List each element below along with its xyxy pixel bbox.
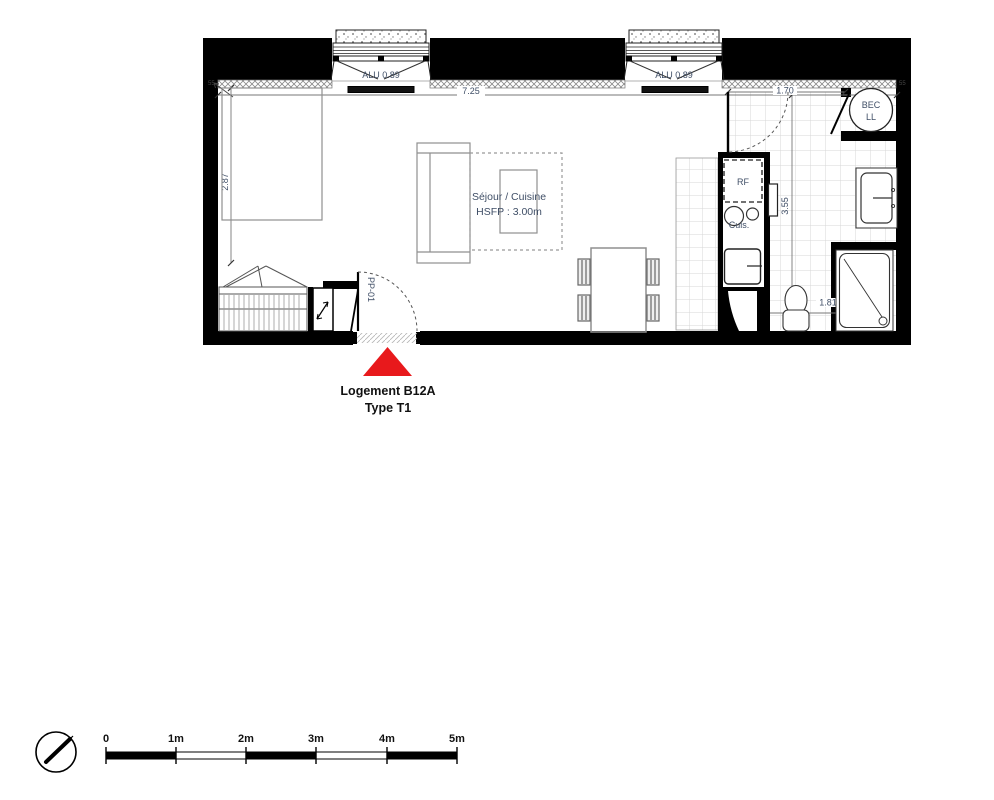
scale-1m: 1m: [168, 733, 184, 745]
toilet: [783, 286, 809, 332]
cooktop-label: Cuis.: [729, 220, 750, 230]
dim-shower-width: 1.81: [819, 298, 837, 308]
unit-type: Type T1: [365, 401, 411, 415]
heater-label-2: LL: [866, 112, 876, 122]
scale-bar: 0 1m 2m 3m 4m 5m: [103, 733, 465, 764]
dim-bath-depth: 3.55: [780, 197, 790, 215]
dim-living-width: 7.25: [462, 86, 480, 96]
insulation-right-label: 55: [899, 81, 906, 87]
wardrobe: [219, 266, 307, 331]
scale-0: 0: [103, 733, 109, 745]
insulation-left-label: 55: [208, 81, 215, 87]
room-ceiling-label: HSFP : 3.00m: [476, 206, 542, 218]
radiator-right: [642, 87, 708, 93]
window-unit-left: ALU 0.89: [331, 30, 431, 93]
scale-4m: 4m: [379, 733, 395, 745]
kitchen-floor-tiles: [676, 158, 718, 330]
floor-plan-drawing: 55 55 ALU 0.89: [0, 0, 994, 800]
north-compass: [36, 732, 76, 772]
unit-title: Logement B12A: [340, 384, 435, 398]
shower: [836, 250, 893, 331]
wardrobe-door-swing-marks: [223, 266, 307, 287]
sofa: [417, 143, 470, 263]
water-heater-washer: [850, 89, 893, 132]
dining-chairs: [578, 259, 659, 321]
scale-2m: 2m: [238, 733, 254, 745]
entrance-door: PP-01: [357, 272, 417, 343]
heater-label-1: BEC: [862, 100, 881, 110]
technical-duct: [313, 288, 333, 331]
window-right-label: ALU 0.89: [655, 70, 693, 80]
radiator-left: [348, 87, 414, 93]
bed: [222, 88, 322, 220]
scale-3m: 3m: [308, 733, 324, 745]
dining-table: [591, 248, 646, 332]
scale-5m: 5m: [449, 733, 465, 745]
dim-bath-width: 1.70: [776, 86, 794, 96]
shower-drain: [879, 317, 887, 325]
entrance-door-label: PP-01: [366, 277, 376, 302]
window-left-label: ALU 0.89: [362, 70, 400, 80]
window-unit-right: ALU 0.89: [624, 30, 724, 93]
room-name-label: Séjour / Cuisine: [472, 191, 546, 203]
floor-plan-sheet: 55 55 ALU 0.89: [0, 0, 994, 800]
washbasin: [856, 168, 897, 228]
wall-radiator: [769, 184, 778, 216]
fridge-label: RF: [737, 177, 749, 187]
entrance-marker-triangle: [363, 347, 412, 376]
